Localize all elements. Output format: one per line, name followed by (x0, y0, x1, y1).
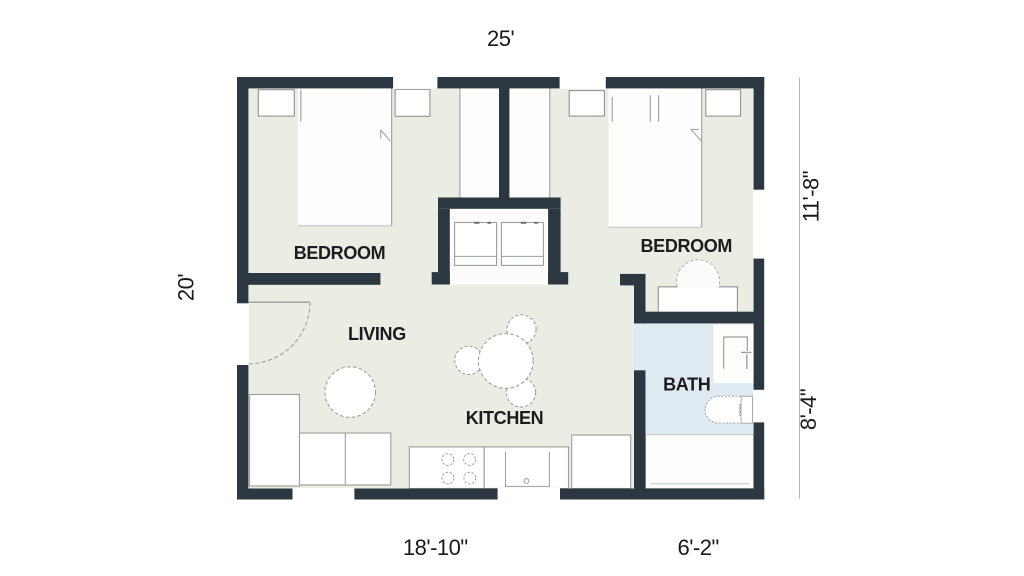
svg-text:BATH: BATH (663, 375, 710, 395)
svg-text:20': 20' (174, 274, 199, 301)
svg-text:KITCHEN: KITCHEN (466, 408, 544, 428)
svg-text:25': 25' (487, 26, 514, 51)
svg-text:18'-10": 18'-10" (403, 535, 468, 560)
svg-text:6'-2": 6'-2" (678, 535, 719, 560)
svg-text:LIVING: LIVING (348, 324, 406, 344)
svg-text:11'-8": 11'-8" (799, 171, 824, 222)
svg-text:BEDROOM: BEDROOM (294, 243, 386, 263)
svg-text:BEDROOM: BEDROOM (641, 236, 733, 256)
